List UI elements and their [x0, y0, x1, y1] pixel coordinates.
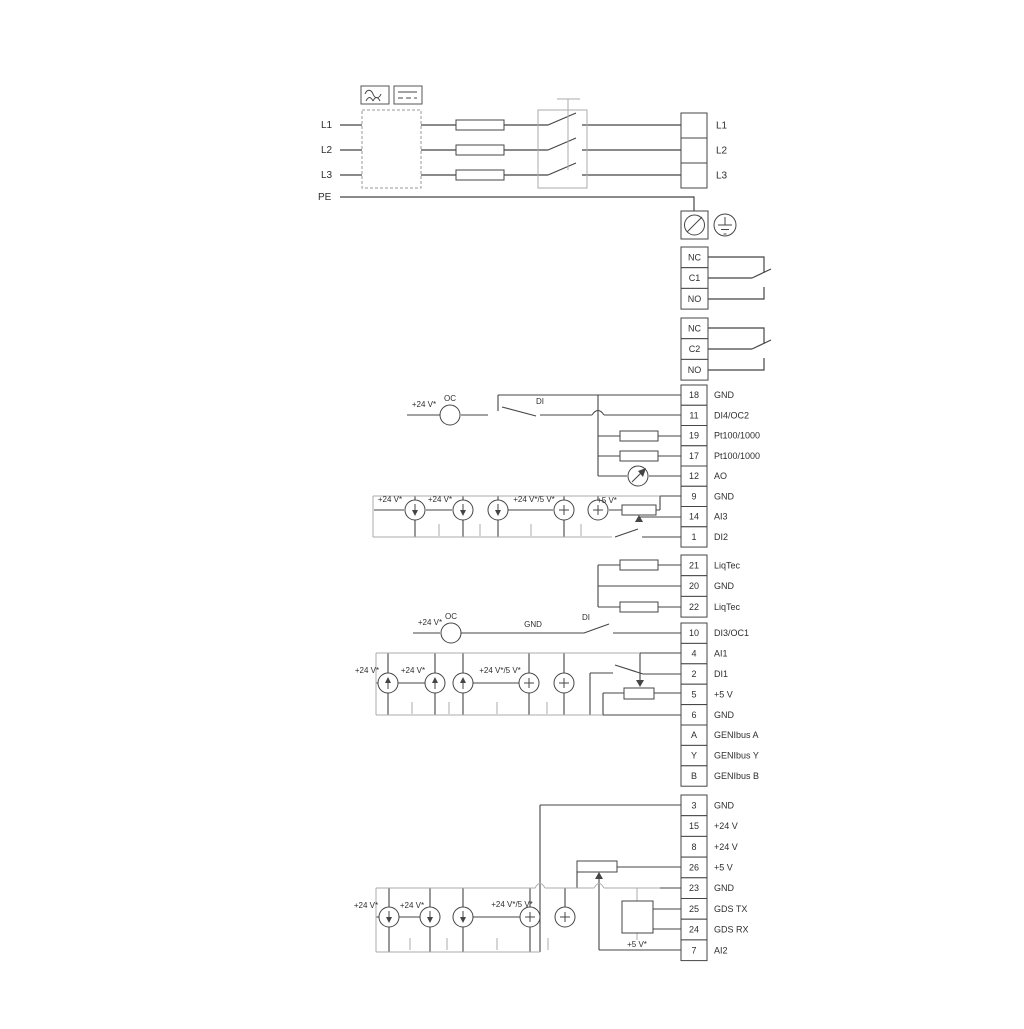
terminal-block-output: L1L2L3 — [681, 113, 728, 188]
main-switch-box — [538, 110, 587, 188]
terminal-block-io-mid: 10DI3/OC14AI12DI15+5 V6GNDAGENIbus AYGEN… — [681, 623, 759, 786]
terminal-label: DI1 — [714, 669, 728, 679]
terminal-number: B — [691, 771, 697, 781]
terminal-label: L2 — [716, 146, 728, 157]
terminal-number: C1 — [689, 273, 701, 283]
terminal-cell-L2 — [681, 138, 707, 163]
io-bottom-wires-gray — [376, 884, 660, 953]
terminal-number: 11 — [689, 410, 698, 420]
terminal-label: +5 V — [714, 689, 733, 699]
terminal-number: 22 — [689, 602, 699, 612]
terminal-number: 10 — [689, 628, 699, 638]
oc-circle-icon — [441, 623, 461, 643]
dc-symbol-box — [394, 86, 422, 104]
terminal-number: NO — [688, 365, 702, 375]
mains-label-pe: PE — [318, 192, 332, 203]
di-label: DI — [582, 613, 590, 622]
terminal-number: 6 — [691, 710, 696, 720]
terminal-cell-L3 — [681, 163, 707, 188]
liqtec-wires — [598, 565, 681, 607]
oc-label: OC — [445, 612, 457, 621]
terminal-number: 5 — [691, 689, 696, 699]
terminal-number: NC — [688, 323, 701, 333]
terminal-label: AI3 — [714, 512, 728, 522]
terminal-block-liqtec: 21LiqTec20GND22LiqTec — [681, 555, 741, 617]
terminal-label: +24 V — [714, 842, 738, 852]
io-mid-wires-gray — [376, 653, 640, 715]
terminal-label: DI4/OC2 — [714, 410, 749, 420]
terminal-label: GND — [714, 710, 735, 720]
terminal-number: 21 — [689, 560, 699, 570]
liqtec-wiring — [598, 560, 681, 612]
oc-label: OC — [444, 394, 456, 403]
terminal-label: AI1 — [714, 649, 728, 659]
potentiometer-ai3 — [622, 505, 656, 515]
terminal-block-relay1: NCC1NO — [681, 247, 708, 309]
ac-symbol-box — [361, 86, 389, 104]
gds-sensor-box — [622, 901, 653, 933]
terminal-label: +5 V — [714, 863, 733, 873]
terminal-label: GDS TX — [714, 904, 747, 914]
terminal-number: 25 — [689, 904, 699, 914]
terminal-number: 14 — [689, 512, 699, 522]
terminal-number: A — [691, 730, 697, 740]
mains-section: L1 L2 L3 PE — [318, 86, 736, 239]
v24-5v-label: +24 V*/5 V* — [513, 495, 555, 504]
terminal-number: 23 — [689, 883, 699, 893]
v5-label: +5 V* — [627, 940, 647, 949]
terminal-number: 4 — [691, 649, 696, 659]
terminal-label: L3 — [716, 171, 728, 182]
terminal-label: GND — [714, 390, 735, 400]
terminal-label: Pt100/1000 — [714, 451, 760, 461]
terminal-label: +24 V — [714, 821, 738, 831]
terminal-number: Y — [691, 751, 697, 761]
mains-label-l3: L3 — [321, 170, 333, 181]
terminal-number: 9 — [691, 491, 696, 501]
terminal-number: 24 — [689, 925, 699, 935]
terminal-label: L1 — [716, 121, 728, 132]
v24-label: +24 V* — [412, 400, 436, 409]
terminal-number: 1 — [691, 532, 696, 542]
potentiometer-ai2 — [577, 861, 617, 872]
wiring-diagram-page: L1 L2 L3 PE — [0, 0, 1024, 1024]
terminal-number: 12 — [689, 471, 699, 481]
terminal-label: LiqTec — [714, 602, 741, 612]
terminal-block-io-bottom: 3GND15+24 V8+24 V26+5 V23GND25GDS TX24GD… — [681, 795, 749, 961]
terminal-number: C2 — [689, 344, 701, 354]
relay-wires — [708, 257, 771, 370]
potentiometer-ai1 — [624, 688, 654, 699]
terminal-label: GENIbus B — [714, 771, 759, 781]
terminal-number: 19 — [689, 431, 699, 441]
fuse-l3 — [456, 170, 504, 180]
terminal-block-relay2: NCC2NO — [681, 318, 708, 380]
pt100-resistor — [620, 431, 658, 441]
terminal-label: GND — [714, 491, 735, 501]
terminal-number: 15 — [689, 821, 699, 831]
pot-wiper-arrow — [635, 515, 643, 522]
v24-label: +24 V* — [428, 495, 452, 504]
v24-label: +24 V* — [354, 901, 378, 910]
v24-label: +24 V* — [400, 901, 424, 910]
terminal-label: DI3/OC1 — [714, 628, 749, 638]
terminal-number: 17 — [689, 451, 699, 461]
pt100-resistor — [620, 451, 658, 461]
mains-label-l1: L1 — [321, 120, 333, 131]
terminal-label: GND — [714, 581, 735, 591]
terminal-number: 20 — [689, 581, 699, 591]
v24-label: +24 V* — [418, 618, 442, 627]
v5-label: +5 V* — [597, 496, 617, 505]
v24-label: +24 V* — [378, 495, 402, 504]
terminal-number: NO — [688, 294, 702, 304]
rcd-dashed-box — [362, 110, 421, 188]
terminal-label: GND — [714, 800, 735, 810]
v24-label: +24 V* — [401, 666, 425, 675]
terminal-number: 8 — [691, 842, 696, 852]
pot-wiper-arrow — [636, 680, 644, 687]
terminal-label: AO — [714, 471, 727, 481]
terminal-label: GND — [714, 883, 735, 893]
terminal-number: 26 — [689, 863, 699, 873]
gnd-label: GND — [524, 620, 542, 629]
terminal-number: 18 — [689, 390, 699, 400]
io-bottom-wiring — [376, 805, 681, 952]
v24-5v-label: +24 V*/5 V* — [479, 666, 521, 675]
v24-5v-label: +24 V*/5 V* — [491, 900, 533, 909]
terminal-cell-L1 — [681, 113, 707, 138]
pot-wiper-arrow — [595, 872, 603, 879]
fuse-l2 — [456, 145, 504, 155]
terminal-label: AI2 — [714, 945, 728, 955]
terminal-label: GENIbus Y — [714, 751, 759, 761]
wiring-diagram: L1 L2 L3 PE — [0, 0, 1024, 1024]
terminal-number: 2 — [691, 669, 696, 679]
terminal-number: NC — [688, 252, 701, 262]
terminal-label: DI2 — [714, 532, 728, 542]
liqtec-resistor — [620, 560, 658, 570]
terminal-label: Pt100/1000 — [714, 431, 760, 441]
fuses — [456, 120, 504, 180]
oc-circle-icon — [440, 405, 460, 425]
liqtec-resistor — [620, 602, 658, 612]
terminal-block-io-top: 18GND11DI4/OC219Pt100/100017Pt100/100012… — [681, 385, 760, 547]
terminal-label: LiqTec — [714, 560, 741, 570]
fuse-l1 — [456, 120, 504, 130]
terminal-number: 7 — [691, 945, 696, 955]
di-label: DI — [536, 397, 544, 406]
mains-label-l2: L2 — [321, 145, 333, 156]
terminal-label: GDS RX — [714, 925, 749, 935]
v24-label: +24 V* — [355, 666, 379, 675]
terminal-label: GENIbus A — [714, 730, 759, 740]
terminal-number: 3 — [691, 800, 696, 810]
